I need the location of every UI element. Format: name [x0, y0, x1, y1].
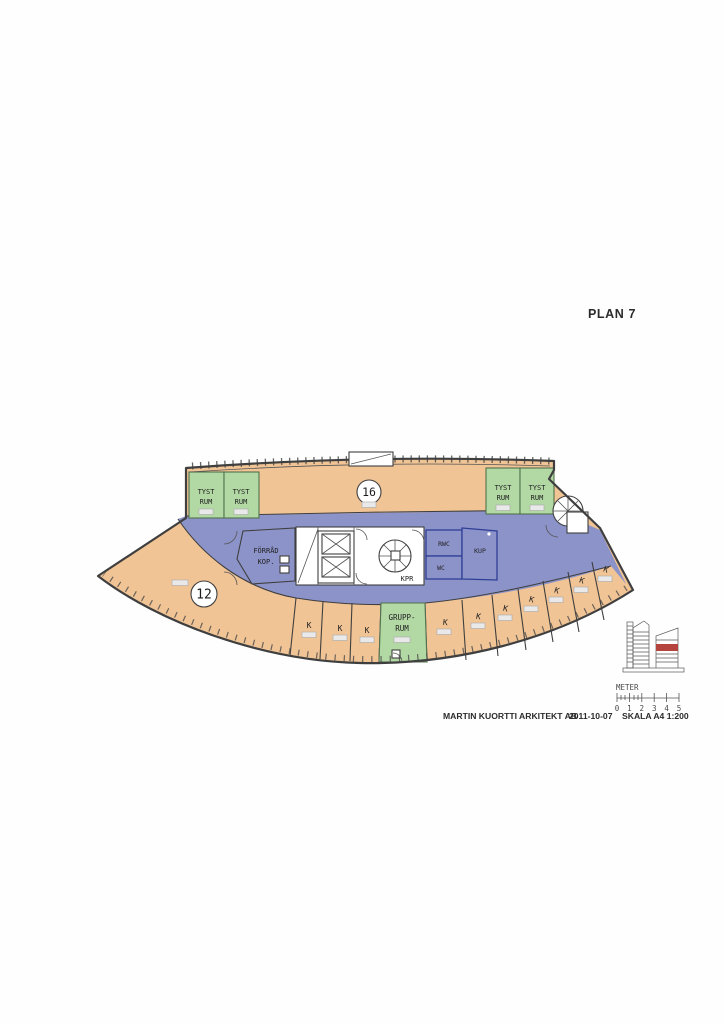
storage-label: FÖRRÅD	[253, 546, 278, 555]
area-tag	[437, 629, 451, 635]
area-tag	[496, 505, 510, 511]
copy-label: KOP.	[258, 558, 275, 566]
kpr-label: KPR	[401, 575, 414, 583]
svg-text:TYST: TYST	[198, 488, 216, 496]
scale-tick: 0	[615, 704, 620, 713]
svg-text:RUM: RUM	[395, 624, 409, 633]
area-tag	[524, 606, 538, 612]
wc-label: WC	[437, 564, 445, 572]
svg-text:K: K	[307, 621, 312, 630]
area-tag	[394, 637, 410, 643]
spiral-stair-core	[379, 540, 411, 572]
current-floor-marker	[656, 644, 678, 651]
building-section-icon	[623, 621, 684, 672]
elevator-shafts	[318, 531, 354, 583]
drawing-date: 2011-10-07	[569, 711, 613, 721]
scanned-drawing-page: 16 12 TYST RUM TYST RUM TYST RUM TYST RU…	[0, 0, 724, 1024]
area-tag	[498, 615, 512, 621]
svg-text:RUM: RUM	[531, 494, 544, 502]
area-tag	[574, 587, 588, 593]
rwc-label: RWC	[438, 540, 450, 548]
area-tag	[362, 502, 376, 508]
wet-rooms	[426, 528, 497, 580]
page-title: PLAN 7	[588, 307, 636, 321]
svg-text:GRUPP-: GRUPP-	[388, 613, 415, 622]
area-tag	[360, 637, 374, 643]
scale-bar-label: METER	[616, 683, 639, 692]
floor-plan-drawing: 16 12 TYST RUM TYST RUM TYST RUM TYST RU…	[0, 0, 724, 1024]
area-tag	[302, 632, 316, 638]
scale-bar: METER 0 1 2 3 4 5	[615, 683, 682, 713]
area-tag	[333, 635, 347, 641]
area-tag	[471, 623, 485, 629]
area-tag	[549, 597, 563, 603]
svg-text:TYST: TYST	[495, 484, 513, 492]
area-tag	[234, 509, 248, 515]
zone-number: 12	[196, 588, 212, 603]
kup-label: KUP	[474, 547, 486, 555]
svg-text:K: K	[365, 626, 370, 635]
drawing-scale: SKALA A4 1:200	[622, 711, 689, 721]
zone-number: 16	[362, 485, 376, 499]
svg-text:RUM: RUM	[235, 498, 248, 506]
svg-text:RUM: RUM	[497, 494, 510, 502]
svg-text:K: K	[338, 624, 343, 633]
area-tag	[172, 580, 188, 586]
area-tag	[530, 505, 544, 511]
architect-firm: MARTIN KUORTTI ARKITEKT AB	[443, 711, 577, 721]
svg-text:TYST: TYST	[529, 484, 547, 492]
title-block: MARTIN KUORTTI ARKITEKT AB 2011-10-07 SK…	[443, 711, 689, 721]
area-tag	[199, 509, 213, 515]
area-tag	[598, 576, 612, 582]
svg-text:RUM: RUM	[200, 498, 213, 506]
svg-text:TYST: TYST	[233, 488, 251, 496]
bay-window	[349, 452, 393, 466]
